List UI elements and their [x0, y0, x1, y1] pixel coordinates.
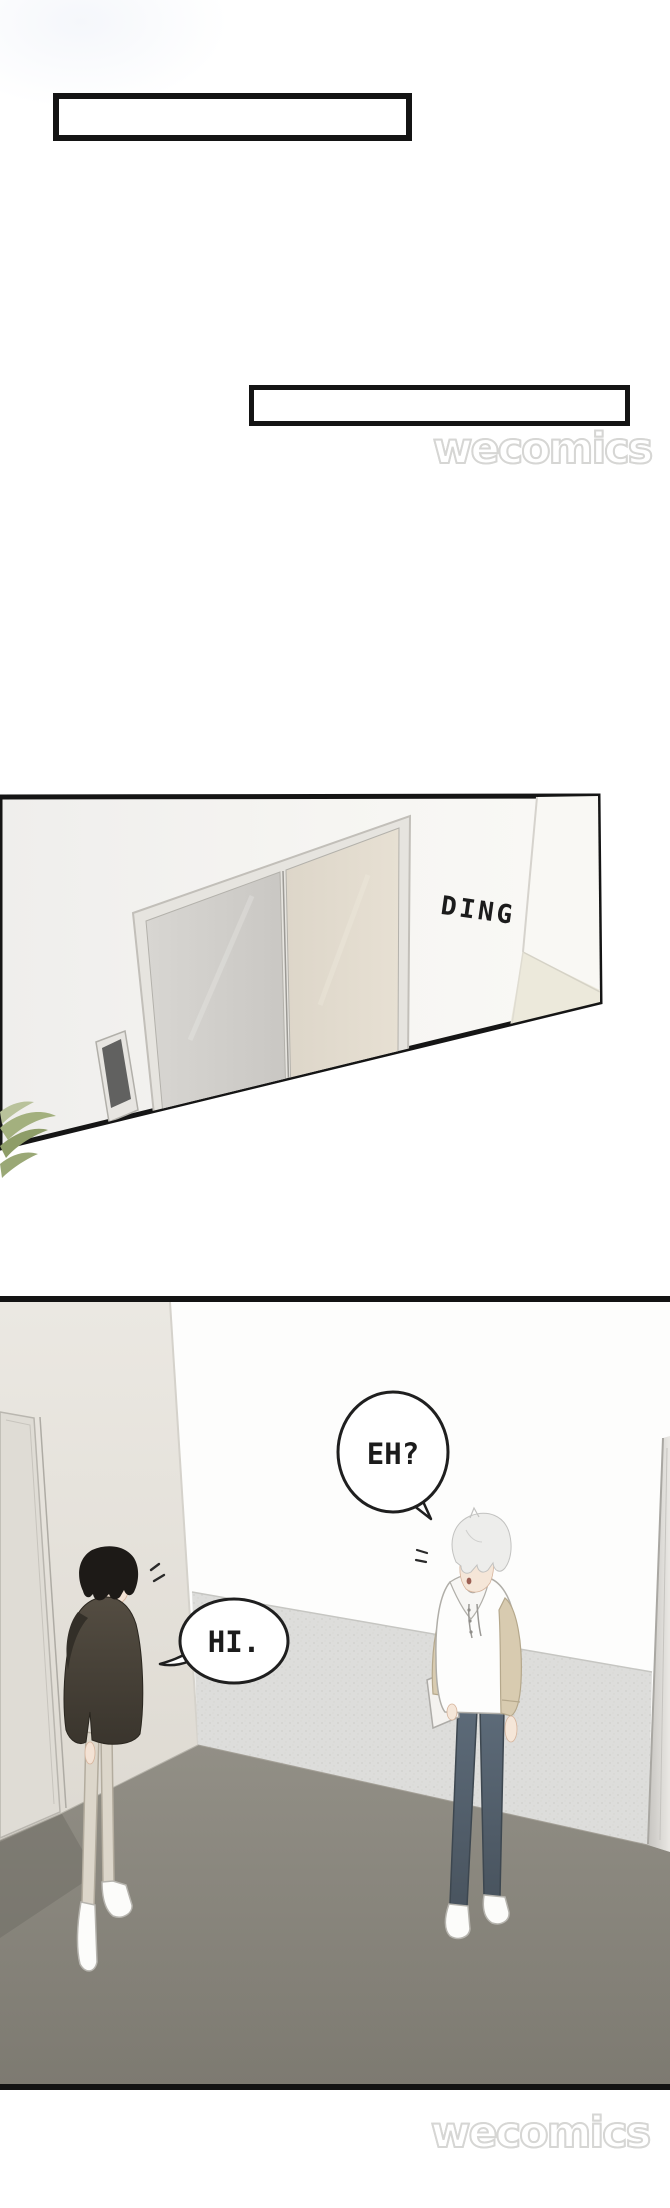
- bubble-text-hi: HI.: [189, 1625, 279, 1659]
- shoe: [483, 1895, 509, 1924]
- sock: [77, 1902, 97, 1971]
- white-hair: [452, 1513, 511, 1573]
- panel-elevator: [0, 796, 600, 1178]
- caption-box-2: [249, 385, 630, 426]
- comic-page: DING EH? HI. wecomics wecomics: [0, 0, 670, 2208]
- black-hair: [79, 1546, 138, 1600]
- comic-artwork: [0, 0, 670, 2208]
- panel-hallway-bottom-border: [0, 2084, 670, 2090]
- hand: [447, 1704, 457, 1720]
- mouth: [467, 1578, 472, 1585]
- watermark-top: wecomics: [432, 424, 652, 474]
- panel-hallway-top-border: [0, 1296, 670, 1302]
- watermark-bottom: wecomics: [430, 2108, 650, 2158]
- bubble-text-eh: EH?: [348, 1437, 438, 1471]
- hand: [505, 1716, 517, 1742]
- hand: [85, 1742, 95, 1764]
- caption-box-1: [53, 93, 412, 141]
- shoe: [445, 1904, 470, 1938]
- panel-hallway: [0, 1296, 670, 2090]
